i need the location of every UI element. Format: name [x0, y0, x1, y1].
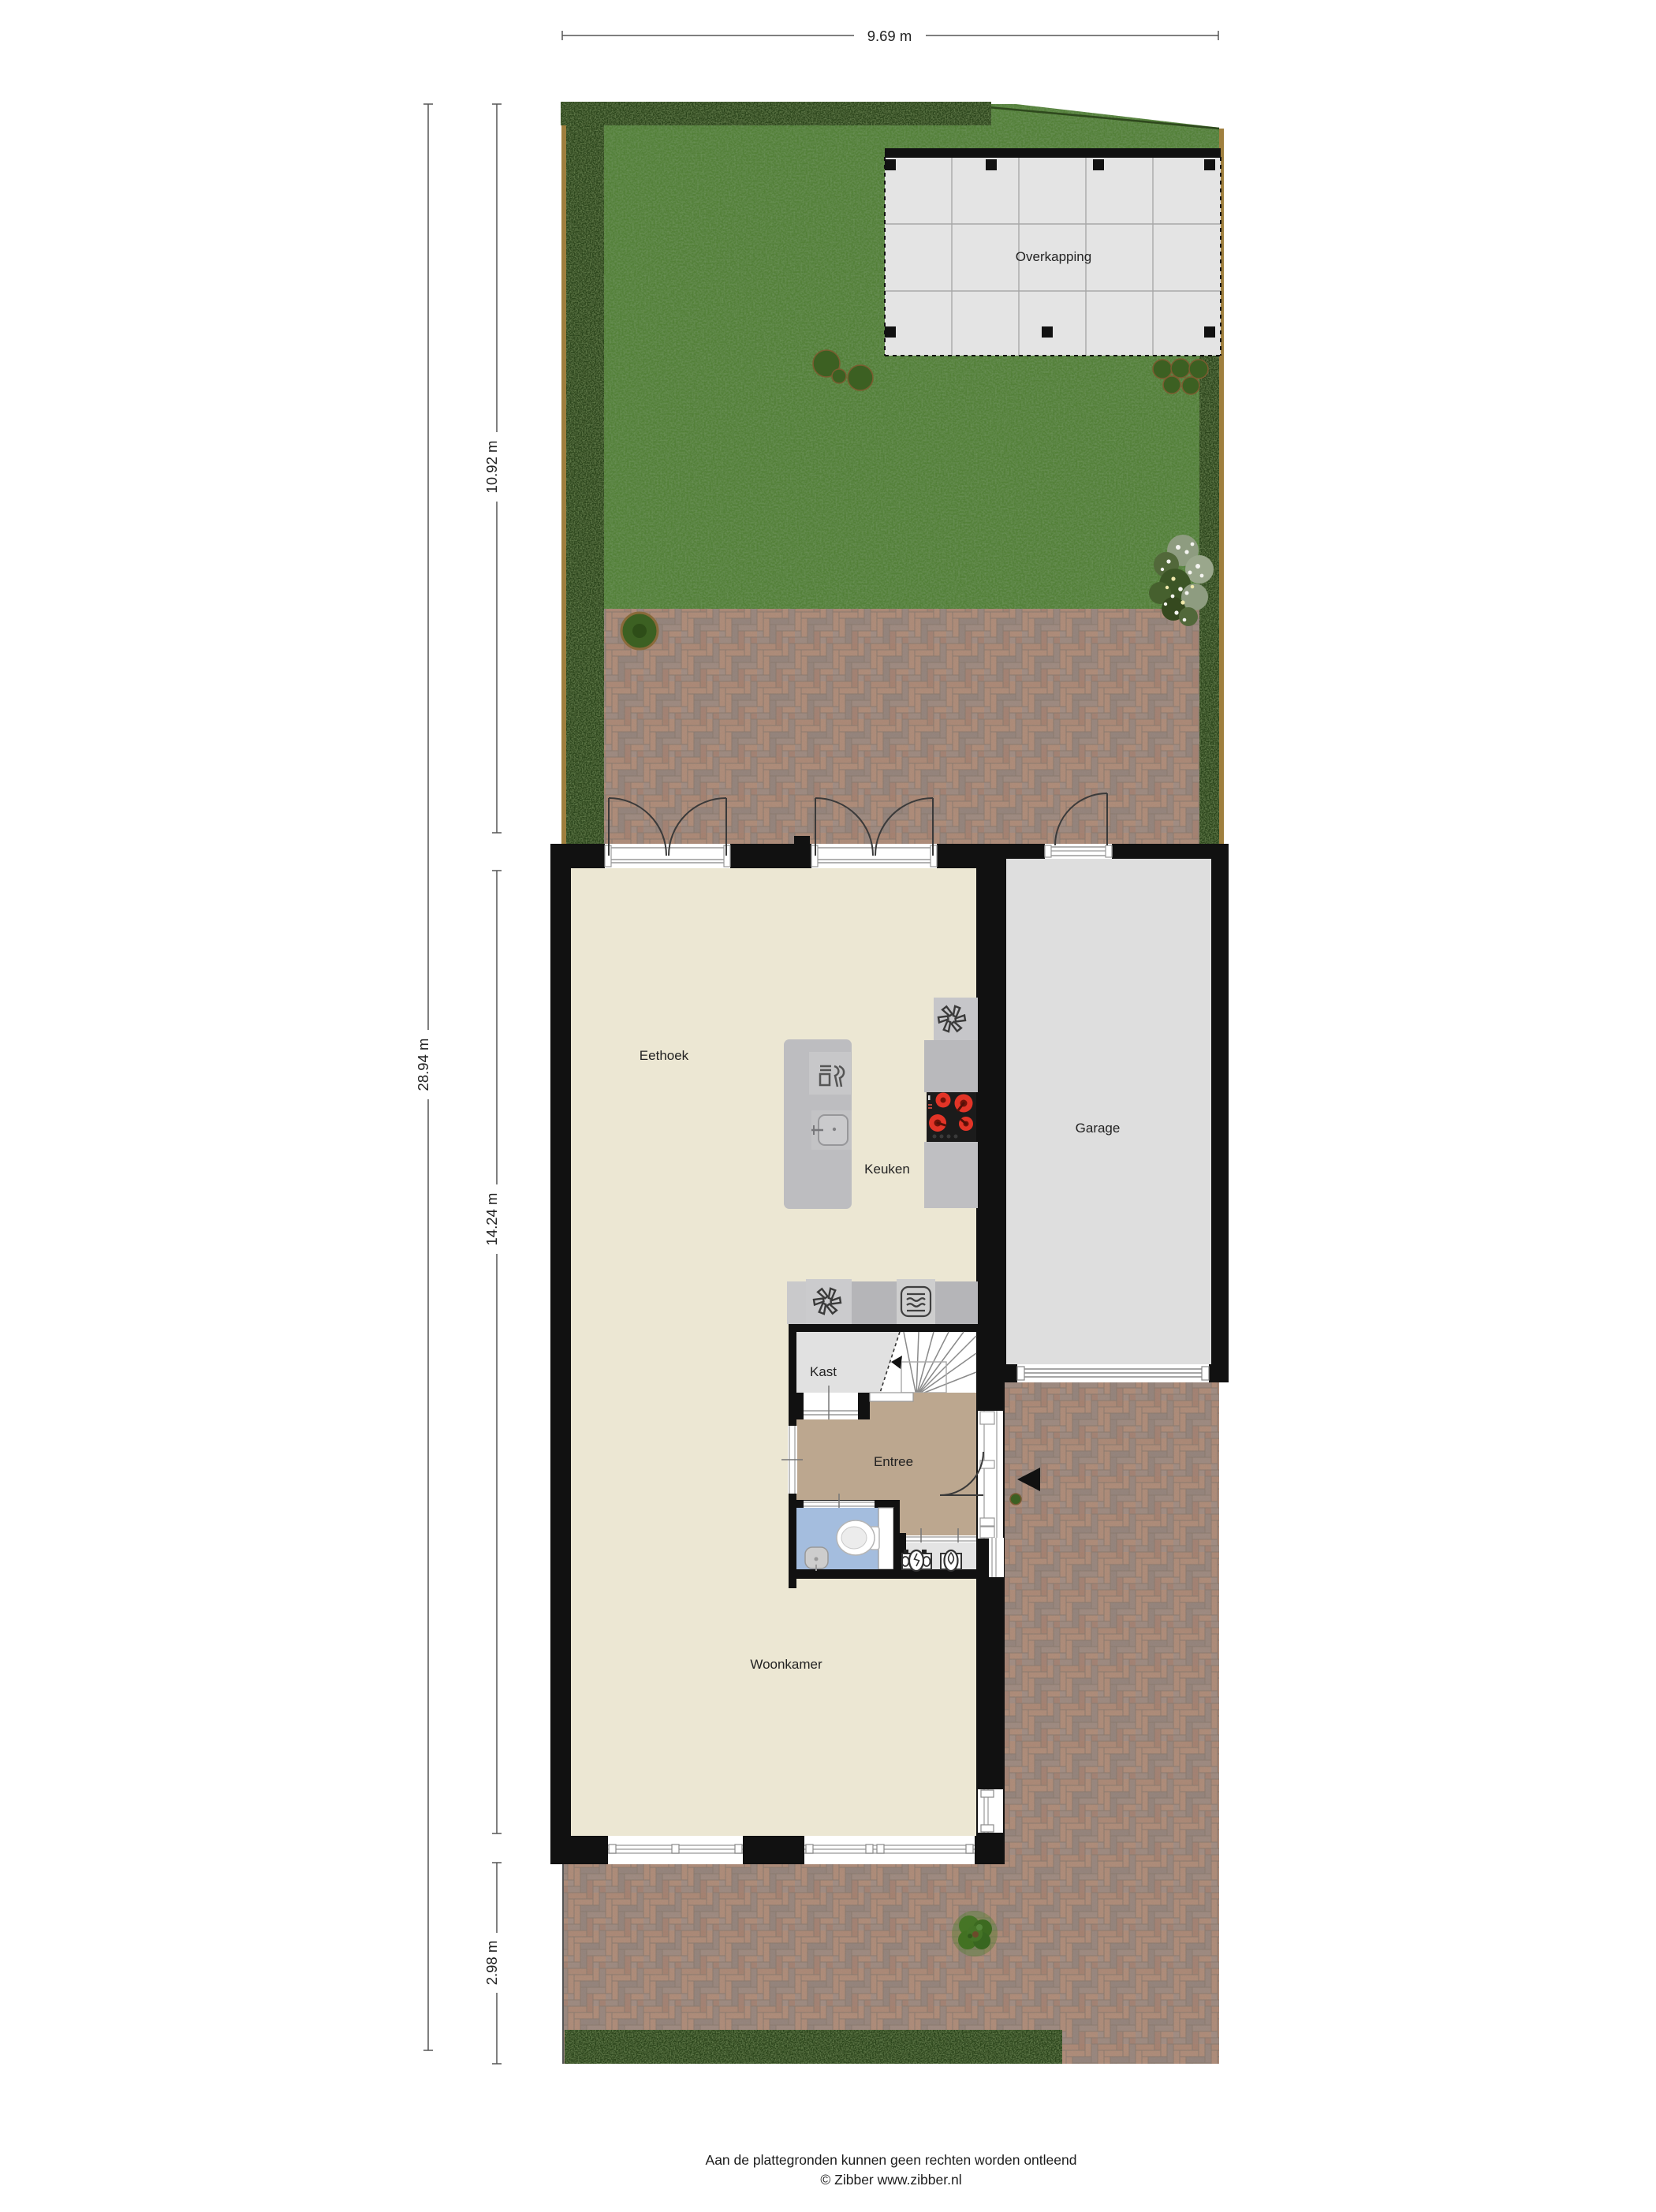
svg-text:14.24 m: 14.24 m [483, 1193, 500, 1246]
svg-text:Overkapping: Overkapping [1016, 249, 1091, 264]
svg-text:2.98 m: 2.98 m [483, 1941, 500, 1986]
svg-text:10.92 m: 10.92 m [483, 441, 500, 494]
svg-text:9.69 m: 9.69 m [867, 28, 912, 44]
svg-text:28.94 m: 28.94 m [415, 1039, 431, 1091]
svg-text:© Zibber www.zibber.nl: © Zibber www.zibber.nl [820, 2172, 961, 2188]
svg-text:Garage: Garage [1076, 1121, 1121, 1136]
svg-text:Aan de plattegronden kunnen ge: Aan de plattegronden kunnen geen rechten… [706, 2152, 1077, 2168]
svg-text:Woonkamer: Woonkamer [750, 1657, 822, 1672]
svg-text:Kast: Kast [810, 1364, 837, 1379]
svg-text:Entree: Entree [874, 1454, 913, 1469]
svg-text:Keuken: Keuken [864, 1162, 910, 1177]
svg-text:Eethoek: Eethoek [640, 1048, 689, 1063]
